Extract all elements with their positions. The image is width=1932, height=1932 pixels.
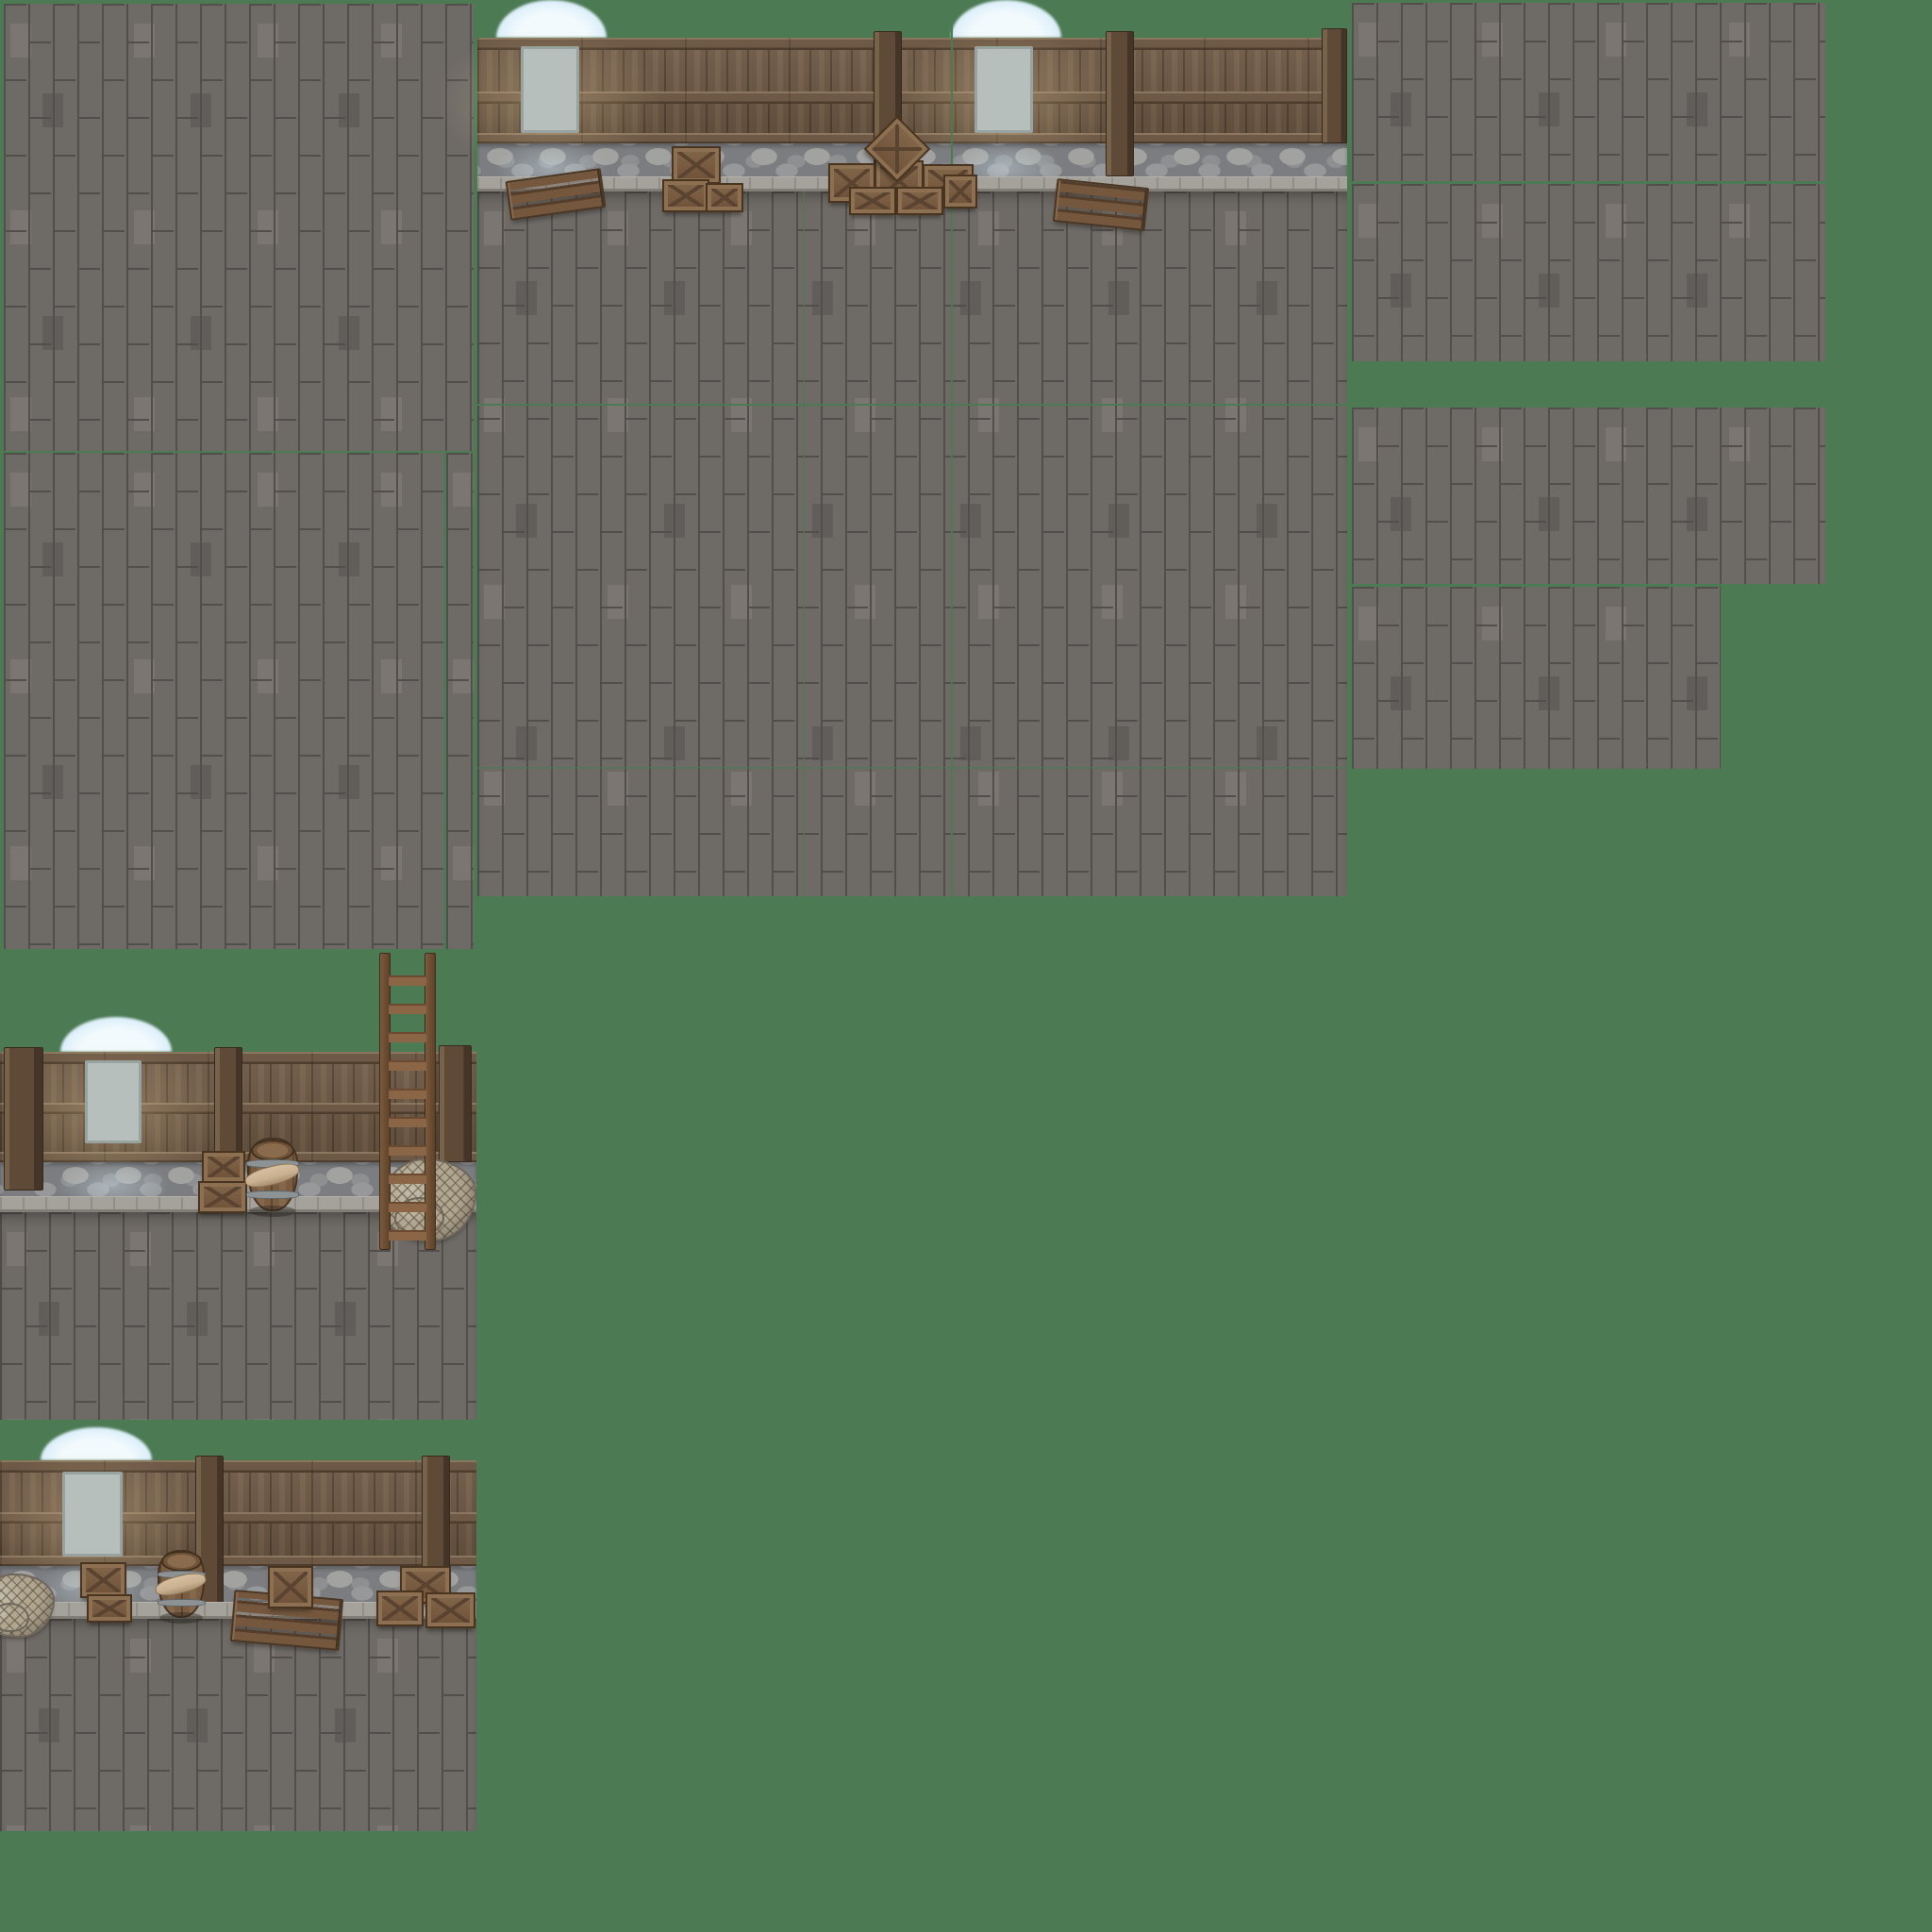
crate bbox=[672, 146, 721, 184]
crate bbox=[706, 183, 743, 212]
warehouse-floor bbox=[477, 192, 1347, 896]
barrel bbox=[158, 1550, 205, 1618]
floor-chunk-right-band-2 bbox=[1352, 184, 1825, 361]
floor-chunk-right-band-1 bbox=[1352, 3, 1825, 181]
floor-chunk-topleft-upper bbox=[4, 4, 474, 451]
tileset-canvas bbox=[0, 0, 1932, 1932]
wall-post bbox=[214, 1047, 242, 1162]
crate bbox=[202, 1151, 245, 1183]
floor-chunk-topleft-lower bbox=[4, 453, 443, 949]
barrel-lid bbox=[161, 1551, 202, 1572]
wall-post bbox=[1106, 31, 1134, 176]
crate bbox=[849, 187, 896, 215]
chunk-seam bbox=[951, 0, 953, 896]
basement-window bbox=[62, 1472, 123, 1557]
basement-window bbox=[521, 46, 579, 133]
barrel-lid bbox=[251, 1140, 294, 1161]
floor-chunk-right-band-4 bbox=[1352, 587, 1721, 769]
wall-post bbox=[4, 1047, 43, 1191]
floor-chunk-topleft-lower-right bbox=[446, 453, 474, 949]
barrel-hoop bbox=[246, 1191, 298, 1199]
chunk-seam bbox=[477, 404, 1347, 406]
crate bbox=[896, 187, 943, 215]
wall-end-post bbox=[1322, 28, 1347, 143]
barrel-hoop bbox=[158, 1599, 206, 1607]
barrel bbox=[247, 1138, 298, 1211]
chunk-seam bbox=[477, 767, 1347, 769]
crate bbox=[425, 1592, 475, 1628]
floor-chunk-right-band-3 bbox=[1352, 408, 1825, 584]
crate bbox=[80, 1562, 126, 1598]
basement-window bbox=[85, 1060, 142, 1143]
crate bbox=[943, 175, 977, 208]
cellar-floor bbox=[0, 1619, 476, 1831]
crate bbox=[87, 1594, 132, 1623]
ladder-rungs bbox=[389, 964, 426, 1241]
crate bbox=[662, 179, 709, 212]
crate bbox=[268, 1566, 313, 1608]
crate bbox=[376, 1591, 424, 1626]
crate bbox=[198, 1181, 247, 1213]
ladder bbox=[379, 953, 436, 1250]
basement-window bbox=[974, 46, 1033, 133]
chunk-seam bbox=[803, 192, 805, 896]
wall-end-post bbox=[439, 1045, 472, 1162]
net-fold bbox=[0, 1603, 29, 1632]
